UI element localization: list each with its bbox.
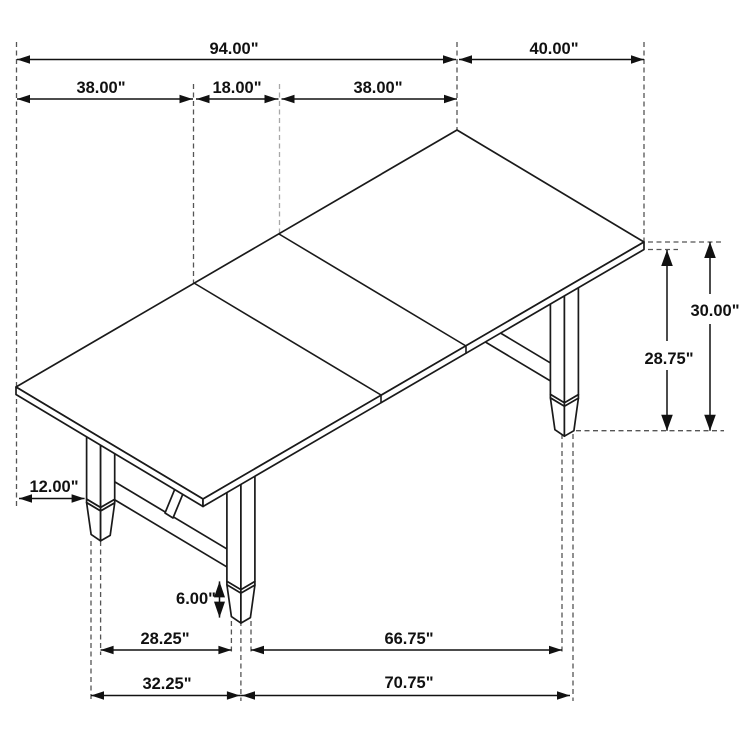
diagram-canvas: 94.00" 40.00" 38.00" 18.00" 38.00" 30.00… (0, 0, 750, 750)
dim-height-underside-label: 28.75" (644, 350, 693, 368)
dim-span-inner-right-label: 66.75" (384, 630, 433, 648)
dim-width-label: 40.00" (529, 40, 578, 58)
dim-leaf-label: 18.00" (212, 79, 261, 97)
dim-overall-length-label: 94.00" (209, 40, 258, 58)
dim-span-inner-left-label: 28.25" (140, 630, 189, 648)
dining-table-drawing (16, 130, 644, 623)
dim-span-outer-left-label: 32.25" (142, 675, 191, 693)
dim-span-outer-right-label: 70.75" (384, 674, 433, 692)
dim-height-top-label: 30.00" (690, 302, 739, 320)
table-dimension-diagram: 94.00" 40.00" 38.00" 18.00" 38.00" 30.00… (0, 0, 750, 750)
dim-foot-height-label: 6.00" (176, 590, 216, 608)
dim-leg-inset-label: 12.00" (29, 478, 78, 496)
dim-left-section-label: 38.00" (76, 79, 125, 97)
dim-right-section-label: 38.00" (353, 79, 402, 97)
